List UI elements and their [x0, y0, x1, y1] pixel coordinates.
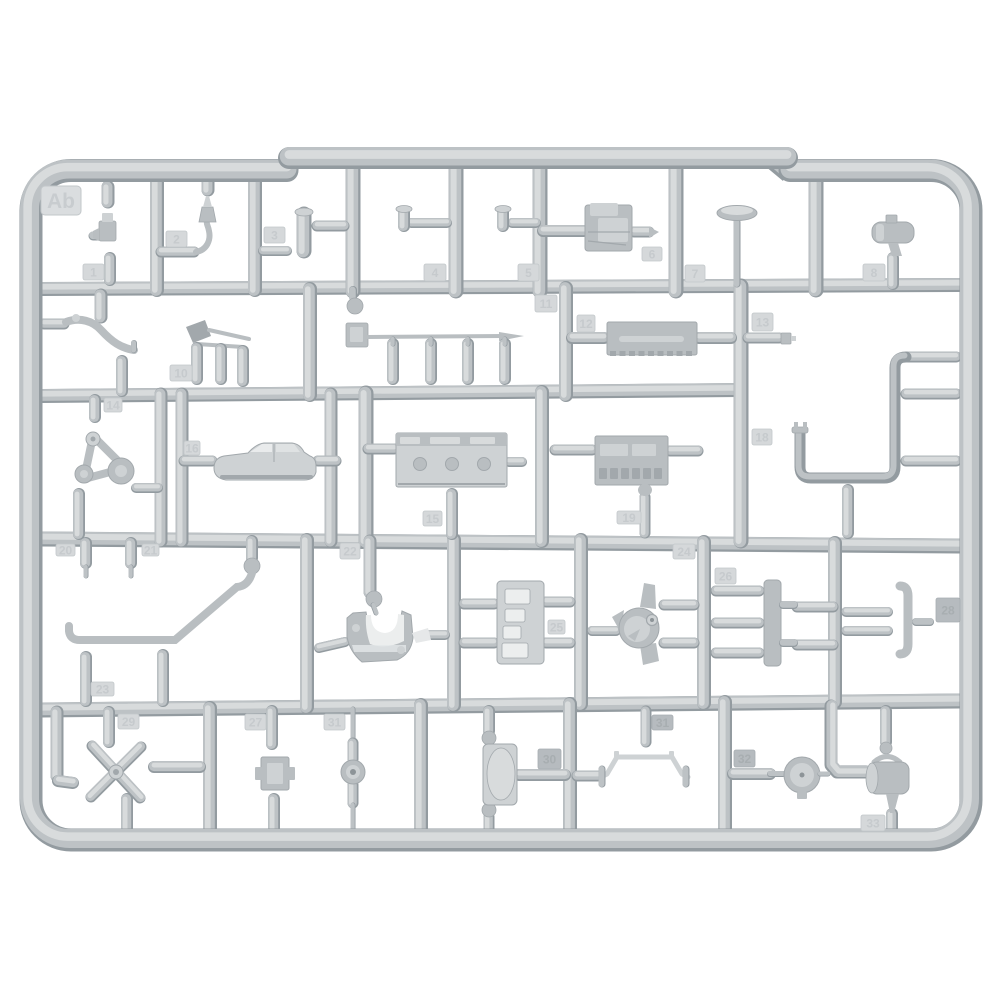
- svg-text:6: 6: [649, 247, 656, 261]
- svg-text:32: 32: [738, 752, 752, 766]
- svg-text:18: 18: [755, 430, 769, 444]
- svg-text:26: 26: [719, 569, 733, 583]
- svg-text:1: 1: [90, 265, 97, 279]
- svg-text:22: 22: [343, 544, 357, 558]
- svg-text:5: 5: [525, 266, 532, 280]
- svg-text:21: 21: [144, 543, 158, 557]
- svg-text:28: 28: [941, 603, 955, 617]
- svg-text:29: 29: [122, 715, 136, 729]
- svg-text:31: 31: [656, 716, 670, 730]
- svg-text:20: 20: [59, 543, 73, 557]
- svg-text:15: 15: [426, 512, 440, 526]
- svg-text:31: 31: [328, 715, 342, 729]
- svg-text:25: 25: [550, 620, 564, 634]
- svg-text:8: 8: [871, 266, 878, 280]
- svg-text:12: 12: [579, 317, 593, 331]
- svg-text:4: 4: [432, 266, 439, 280]
- svg-text:14: 14: [106, 398, 120, 412]
- svg-text:13: 13: [756, 315, 770, 329]
- svg-text:27: 27: [249, 715, 263, 729]
- svg-text:33: 33: [866, 816, 880, 830]
- svg-text:Ab: Ab: [47, 190, 75, 213]
- svg-text:16: 16: [185, 441, 199, 455]
- svg-text:11: 11: [540, 297, 553, 311]
- svg-text:3: 3: [271, 228, 278, 242]
- svg-text:2: 2: [173, 232, 180, 246]
- svg-text:7: 7: [692, 267, 699, 281]
- svg-text:10: 10: [174, 366, 188, 380]
- svg-text:23: 23: [96, 682, 110, 696]
- svg-text:24: 24: [677, 545, 691, 559]
- svg-text:19: 19: [622, 511, 636, 525]
- svg-text:30: 30: [543, 752, 557, 766]
